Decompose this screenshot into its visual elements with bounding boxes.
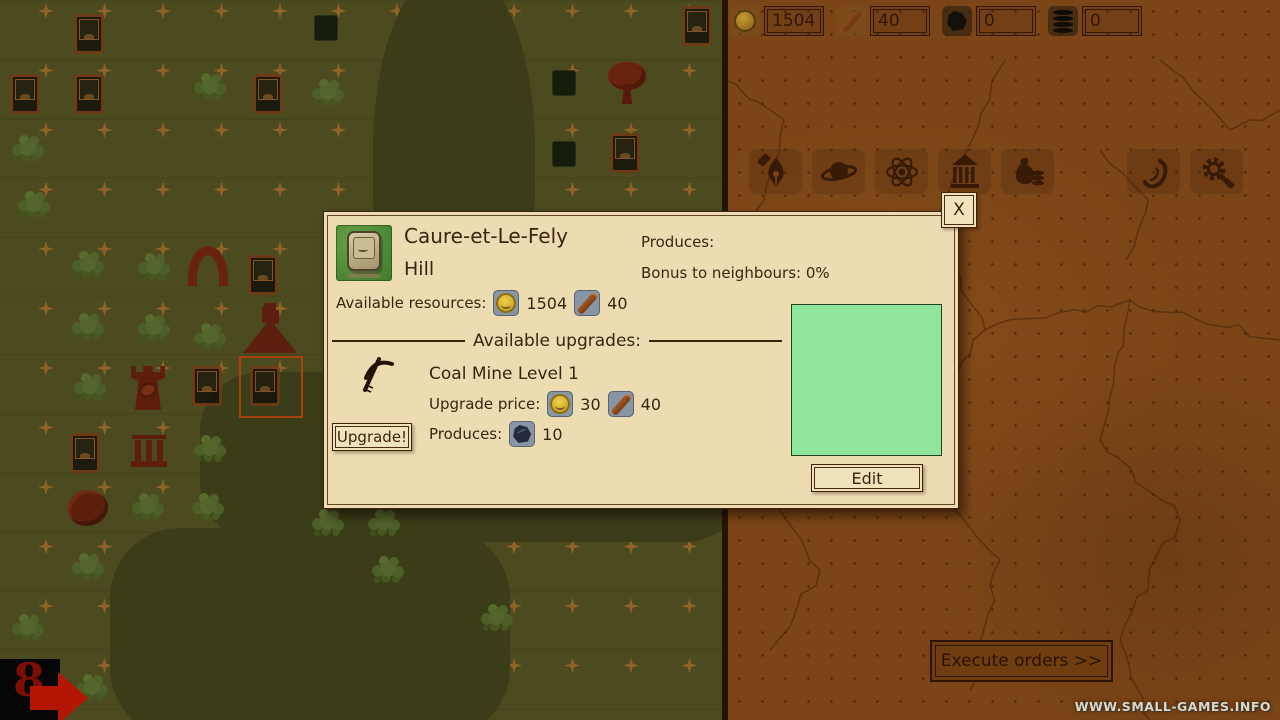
selected-tile-highlight bbox=[239, 356, 303, 418]
temple-icon[interactable] bbox=[937, 148, 992, 195]
upgrade-button[interactable]: Upgrade! bbox=[332, 423, 412, 451]
sparkle bbox=[214, 3, 230, 19]
resource-wood: 40 bbox=[836, 6, 930, 36]
river bbox=[110, 528, 510, 720]
edit-button[interactable]: Edit bbox=[811, 464, 923, 492]
province-hill-icon bbox=[336, 225, 392, 281]
sparkle bbox=[214, 122, 230, 138]
barrel-icon bbox=[1048, 6, 1078, 36]
sparkle bbox=[565, 658, 581, 674]
hill-tile[interactable] bbox=[74, 14, 104, 54]
forest-tile[interactable] bbox=[190, 318, 230, 354]
produces-label: Produces: bbox=[641, 233, 714, 251]
sparkle bbox=[623, 3, 639, 19]
forest-tile[interactable] bbox=[308, 74, 348, 110]
sparkle bbox=[623, 658, 639, 674]
sparkle bbox=[38, 539, 54, 555]
close-button[interactable]: X bbox=[941, 192, 977, 228]
sparkle bbox=[565, 598, 581, 614]
hill-tile[interactable] bbox=[192, 366, 222, 406]
province-color-preview bbox=[791, 304, 942, 456]
sparkle bbox=[155, 3, 171, 19]
available-upgrades-divider: Available upgrades: bbox=[332, 331, 782, 351]
forest-tile[interactable] bbox=[364, 504, 404, 540]
landmark-columns[interactable] bbox=[128, 430, 170, 468]
landmark-mushroom[interactable] bbox=[68, 490, 108, 526]
landmark-volcano[interactable] bbox=[243, 303, 297, 353]
planet-icon[interactable] bbox=[811, 148, 866, 195]
coal-icon bbox=[509, 421, 535, 447]
available-resources-label: Available resources: bbox=[336, 294, 486, 312]
sparkle bbox=[623, 182, 639, 198]
forest-tile[interactable] bbox=[68, 308, 108, 344]
sparkle bbox=[565, 182, 581, 198]
hill-tile[interactable] bbox=[253, 74, 283, 114]
sparkle bbox=[272, 122, 288, 138]
settings-icon[interactable] bbox=[1189, 148, 1244, 195]
forest-tile[interactable] bbox=[128, 488, 168, 524]
watermark: WWW.SMALL-GAMES.INFO bbox=[1075, 699, 1271, 714]
resource-value: 1504 bbox=[764, 6, 824, 36]
resource-value: 0 bbox=[976, 6, 1036, 36]
sparkle bbox=[682, 63, 698, 79]
sparkle bbox=[331, 122, 347, 138]
ear-icon[interactable] bbox=[1126, 148, 1181, 195]
pen-icon[interactable] bbox=[748, 148, 803, 195]
sparkle bbox=[97, 182, 113, 198]
forest-tile[interactable] bbox=[134, 248, 174, 284]
sparkle bbox=[682, 598, 698, 614]
province-dialog: Caure-et-Le-Fely Hill Produces: Bonus to… bbox=[323, 211, 959, 509]
resource-amount: 40 bbox=[641, 395, 661, 414]
forest-tile[interactable] bbox=[368, 551, 408, 587]
bonus-to-neighbours-label: Bonus to neighbours: 0% bbox=[641, 264, 830, 282]
hill-tile[interactable] bbox=[74, 74, 104, 114]
pickaxe-icon bbox=[354, 352, 398, 396]
forest-tile[interactable] bbox=[14, 186, 54, 222]
coal-icon bbox=[942, 6, 972, 36]
upgrade-price-row: Upgrade price: 3040 bbox=[429, 391, 661, 417]
sparkle bbox=[272, 182, 288, 198]
sparkle bbox=[38, 479, 54, 495]
forest-tile[interactable] bbox=[190, 430, 230, 466]
coin-icon bbox=[730, 6, 760, 36]
coin-icon bbox=[493, 290, 519, 316]
sparkle bbox=[682, 658, 698, 674]
upgrade-produces-label: Produces: bbox=[429, 425, 502, 443]
sparkle bbox=[155, 182, 171, 198]
upgrade-name: Coal Mine Level 1 bbox=[429, 364, 579, 384]
sparkle bbox=[38, 63, 54, 79]
forest-tile[interactable] bbox=[68, 548, 108, 584]
hill-tile[interactable] bbox=[610, 133, 640, 173]
resource-amount: 30 bbox=[580, 395, 600, 414]
resource-bar: 15044000 bbox=[730, 6, 1142, 36]
sparkle bbox=[38, 241, 54, 257]
sparkle bbox=[97, 122, 113, 138]
resource-gold: 1504 bbox=[730, 6, 824, 36]
available-resources-row: Available resources: 150440 bbox=[336, 290, 628, 316]
execute-orders-button[interactable]: Execute orders >> bbox=[930, 640, 1113, 682]
wood-icon bbox=[608, 391, 634, 417]
atom-icon[interactable] bbox=[874, 148, 929, 195]
sparkle bbox=[38, 3, 54, 19]
arrow-icon bbox=[58, 672, 88, 720]
forest-tile[interactable] bbox=[8, 609, 48, 645]
sparkle bbox=[38, 301, 54, 317]
sparkle bbox=[682, 122, 698, 138]
resource-amount: 10 bbox=[542, 425, 562, 444]
sparkle bbox=[565, 3, 581, 19]
hill-tile[interactable] bbox=[70, 433, 100, 473]
forest-tile[interactable] bbox=[477, 599, 517, 635]
sparkle bbox=[97, 420, 113, 436]
hill-tile[interactable] bbox=[248, 255, 278, 295]
resource-barrels: 0 bbox=[1048, 6, 1142, 36]
treasury-icon[interactable] bbox=[1000, 148, 1055, 195]
forest-tile[interactable] bbox=[188, 488, 228, 524]
sparkle bbox=[214, 301, 230, 317]
province-name: Caure-et-Le-Fely bbox=[404, 224, 568, 248]
sparkle bbox=[272, 3, 288, 19]
available-upgrades-label: Available upgrades: bbox=[473, 331, 641, 351]
wood-icon bbox=[836, 6, 866, 36]
arrow-icon bbox=[30, 686, 60, 710]
forest-tile[interactable] bbox=[134, 309, 174, 345]
sparkle bbox=[38, 420, 54, 436]
rock-tile[interactable] bbox=[552, 70, 576, 96]
hill-tile[interactable] bbox=[10, 74, 40, 114]
upgrade-produces-row: Produces: 10 bbox=[429, 421, 563, 447]
forest-tile[interactable] bbox=[308, 504, 348, 540]
forest-tile[interactable] bbox=[8, 130, 48, 166]
coin-icon bbox=[547, 391, 573, 417]
sparkle bbox=[214, 182, 230, 198]
game-screen: 15044000 Execute orders >> Caure-et-Le-F… bbox=[0, 0, 1280, 720]
forest-tile[interactable] bbox=[68, 246, 108, 282]
resource-amount: 1504 bbox=[526, 294, 567, 313]
rock-tile[interactable] bbox=[314, 15, 338, 41]
sparkle bbox=[155, 63, 171, 79]
sparkle bbox=[623, 598, 639, 614]
sparkle bbox=[155, 122, 171, 138]
province-type: Hill bbox=[404, 258, 434, 280]
resource-amount: 40 bbox=[607, 294, 627, 313]
hill-tile[interactable] bbox=[682, 6, 712, 46]
resource-value: 40 bbox=[870, 6, 930, 36]
resource-coal: 0 bbox=[942, 6, 1036, 36]
wood-icon bbox=[574, 290, 600, 316]
forest-tile[interactable] bbox=[190, 68, 230, 104]
rock-tile[interactable] bbox=[552, 141, 576, 167]
upgrade-price-label: Upgrade price: bbox=[429, 395, 540, 413]
resource-value: 0 bbox=[1082, 6, 1142, 36]
sparkle bbox=[331, 182, 347, 198]
sparkle bbox=[682, 182, 698, 198]
sparkle bbox=[565, 122, 581, 138]
landmark-rook[interactable] bbox=[131, 366, 165, 410]
forest-tile[interactable] bbox=[70, 368, 110, 404]
landmark-arch[interactable] bbox=[186, 246, 230, 286]
turn-indicator: 8 bbox=[0, 659, 60, 720]
sparkle bbox=[38, 360, 54, 376]
landmark-redtree[interactable] bbox=[604, 62, 650, 108]
